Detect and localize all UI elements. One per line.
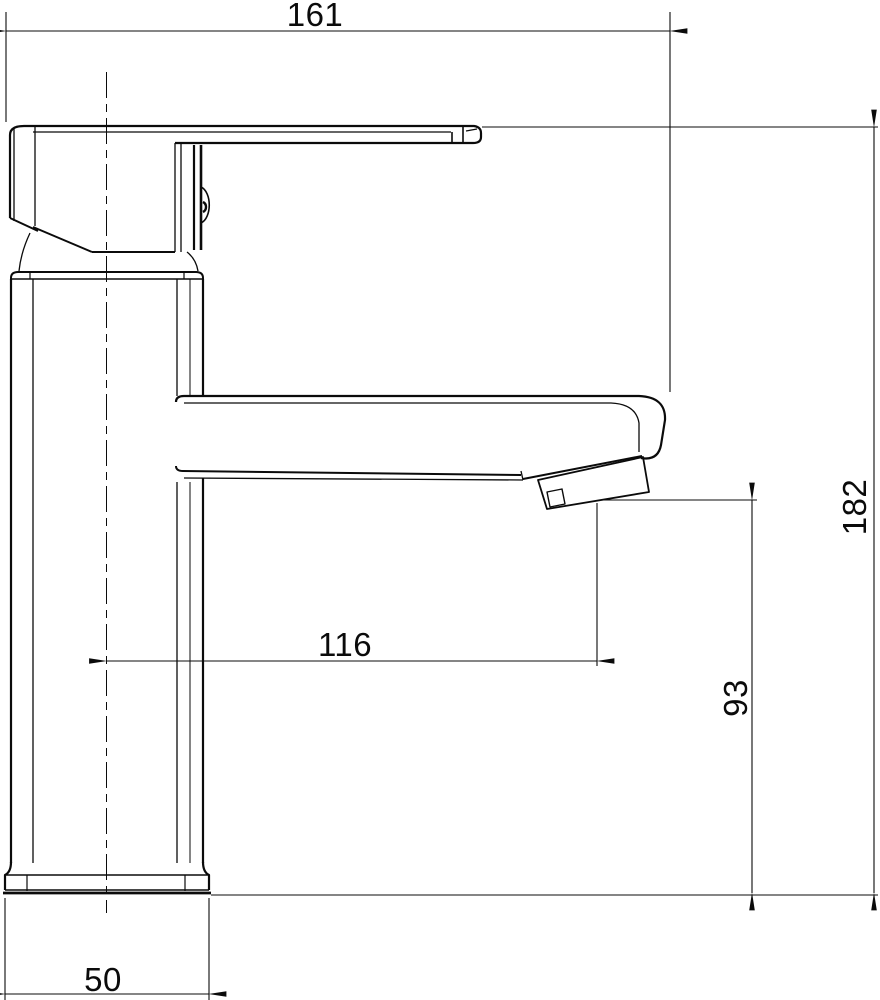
dimension-label-116: 116 (318, 626, 372, 663)
cartridge-head (10, 127, 209, 271)
spout-underside-edge-2 (184, 478, 523, 480)
spout-top-contour (184, 403, 639, 452)
neck-left-curve (19, 233, 30, 271)
dimension-annotations: 161 182 93 116 50 (5, 0, 878, 1000)
head-chamfer-long (33, 227, 92, 252)
side-screw-detail (203, 202, 206, 212)
spout-top-outline (176, 396, 665, 458)
dimension-overall-length: 161 (6, 0, 670, 392)
neck-right-curve (187, 252, 198, 271)
dimension-spout-reach: 116 (107, 503, 598, 666)
faucet-technical-drawing: 161 182 93 116 50 (0, 0, 880, 1000)
aerator-notch (547, 489, 565, 507)
spout-underside-end-tick (521, 471, 523, 480)
dimension-label-50: 50 (84, 961, 122, 998)
dimension-label-161: 161 (287, 0, 344, 33)
head-chamfer-short (10, 218, 38, 231)
dimension-label-93: 93 (717, 679, 754, 717)
spout-rear-bottom-edge (523, 456, 642, 479)
handle-tip-highlight (466, 129, 477, 131)
spout-underside-edge-1 (176, 466, 521, 475)
technical-drawing-canvas: 161 182 93 116 50 (0, 0, 880, 1000)
dimension-base-width: 50 (5, 898, 209, 1000)
dimension-label-182: 182 (836, 479, 873, 536)
spout (176, 396, 665, 509)
base-flare-right (203, 862, 209, 890)
base-flare-left (5, 862, 11, 890)
handle-lever (10, 126, 481, 143)
dimension-overall-height: 182 (211, 127, 878, 895)
handle-outline (10, 126, 481, 143)
dimension-spout-outlet-height: 93 (601, 500, 757, 893)
faucet-outline (3, 72, 665, 913)
